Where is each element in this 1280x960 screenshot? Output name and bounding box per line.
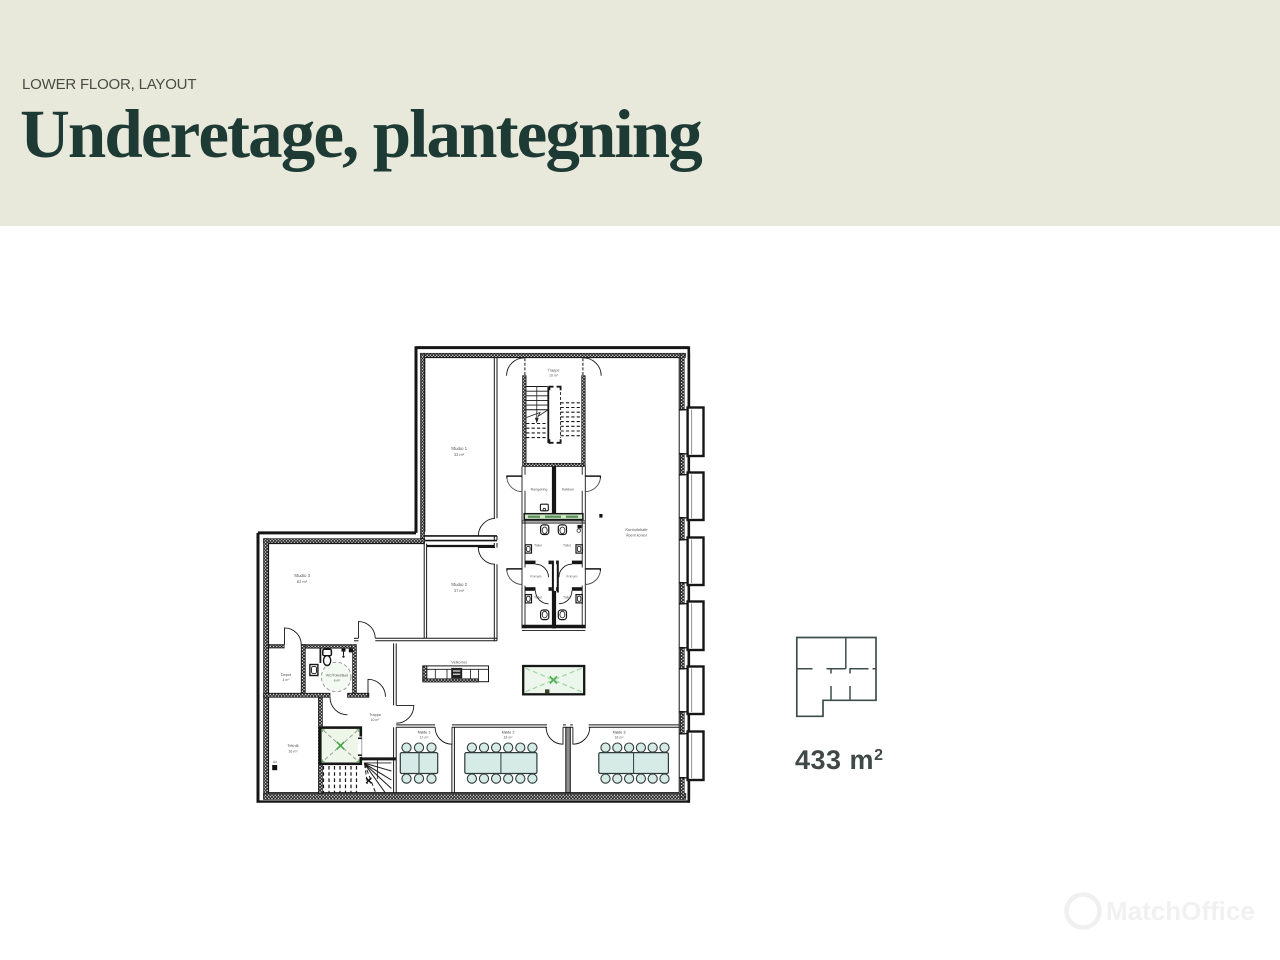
svg-text:Åbent kontor: Åbent kontor — [626, 533, 648, 538]
svg-text:Møde 1: Møde 1 — [418, 731, 431, 735]
svg-text:Studio 3: Studio 3 — [294, 573, 311, 578]
svg-text:Møde 3: Møde 3 — [613, 731, 626, 735]
svg-text:433 m2: 433 m2 — [795, 745, 883, 775]
svg-text:Toilet: Toilet — [563, 544, 571, 548]
svg-text:Køkken: Køkken — [562, 488, 574, 492]
svg-text:Toilet: Toilet — [534, 596, 542, 600]
svg-text:18 m²: 18 m² — [504, 736, 514, 740]
svg-text:MatchOffice: MatchOffice — [1106, 896, 1255, 926]
svg-text:Depot: Depot — [281, 673, 292, 677]
svg-text:16 m²: 16 m² — [288, 750, 298, 754]
svg-text:Studio 1: Studio 1 — [451, 446, 468, 451]
svg-text:12 m²: 12 m² — [420, 736, 430, 740]
svg-text:Forrum: Forrum — [567, 575, 578, 579]
svg-text:18 m²: 18 m² — [615, 736, 625, 740]
svg-text:10 m²: 10 m² — [549, 374, 559, 378]
svg-text:4 m²: 4 m² — [283, 678, 291, 682]
svg-text:GA: GA — [273, 760, 278, 764]
svg-text:Velkomst: Velkomst — [451, 661, 467, 665]
svg-text:Toilet: Toilet — [534, 544, 542, 548]
svg-text:62 m²: 62 m² — [297, 579, 308, 584]
svg-text:Møde 2: Møde 2 — [502, 731, 515, 735]
svg-text:10 m²: 10 m² — [371, 718, 381, 722]
svg-text:Trappe: Trappe — [548, 369, 560, 373]
svg-text:Kontorlokale: Kontorlokale — [625, 527, 648, 532]
svg-text:Rengøring: Rengøring — [531, 488, 548, 492]
svg-text:Teknik: Teknik — [287, 743, 298, 748]
svg-text:WC/Toilet/Bad: WC/Toilet/Bad — [326, 674, 348, 678]
svg-text:37 m²: 37 m² — [454, 588, 465, 593]
svg-text:Toilet: Toilet — [563, 596, 571, 600]
svg-text:Studio 2: Studio 2 — [451, 582, 468, 587]
svg-text:Trappe: Trappe — [369, 713, 381, 717]
svg-text:33 m²: 33 m² — [454, 452, 465, 457]
svg-text:Forrum: Forrum — [531, 575, 542, 579]
svg-text:6 m²: 6 m² — [334, 679, 341, 683]
